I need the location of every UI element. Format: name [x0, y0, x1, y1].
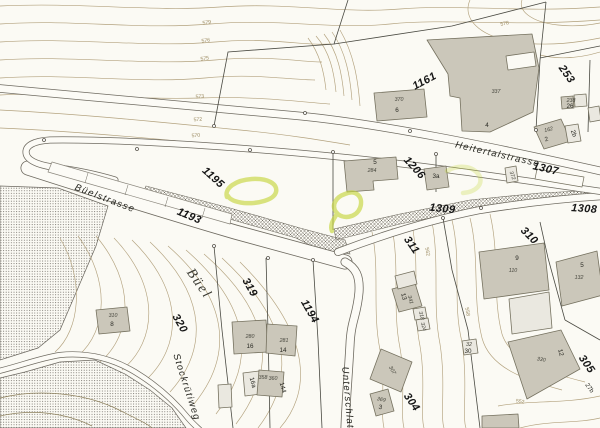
building-insurance-number-label: 360: [269, 376, 278, 382]
house-number-label: 14: [279, 347, 287, 354]
building-9-110-annex: [509, 292, 552, 334]
house-number-label: 26: [566, 103, 574, 110]
building-insurance-number-label: 110: [509, 268, 517, 274]
building-insurance-number-label: 280: [245, 334, 255, 340]
house-number-label: 8: [110, 321, 114, 328]
building-insurance-number-label: 132: [575, 275, 584, 281]
house-number-label: 3a: [432, 173, 440, 180]
contour-elevation-label: 576: [201, 37, 211, 44]
building-insurance-number-label: 310: [109, 313, 118, 319]
contour-elevation-label: 579: [202, 19, 212, 26]
building-insurance-number-label: 281: [279, 338, 289, 344]
building-insurance-number-label: 284: [367, 168, 377, 174]
house-number-label: 9: [515, 255, 519, 262]
contour-elevation-label: 573: [195, 94, 204, 101]
building-insurance-number-label: 337: [492, 89, 502, 95]
building-edge-north: [588, 106, 600, 122]
building-insurance-number-label: 370: [395, 97, 404, 103]
contour-elevation-label: 572: [193, 117, 202, 124]
contour-elevation-label: 570: [191, 133, 200, 140]
parcel-number-label: 1308: [571, 202, 598, 216]
house-number-label: 5: [580, 262, 584, 269]
building-insurance-number-label: 358: [259, 375, 268, 381]
house-number-label: 30: [464, 348, 472, 355]
map-viewport: 5795765755785735725705625585523703371622…: [0, 0, 600, 428]
building-370-6: [374, 89, 427, 121]
contour-elevation-label: 575: [200, 55, 210, 62]
building-26: [574, 94, 587, 107]
contour-elevation-label: 552: [515, 398, 525, 405]
house-number-label: 16: [246, 343, 254, 350]
house-number-label: 5: [373, 159, 377, 166]
building-small-west: [218, 384, 232, 408]
building-edge-south: [482, 414, 519, 428]
house-number-label: 4: [485, 122, 489, 129]
house-number-label: 6: [395, 107, 399, 114]
cadastral-map: 5795765755785735725705625585523703371622…: [0, 0, 600, 428]
